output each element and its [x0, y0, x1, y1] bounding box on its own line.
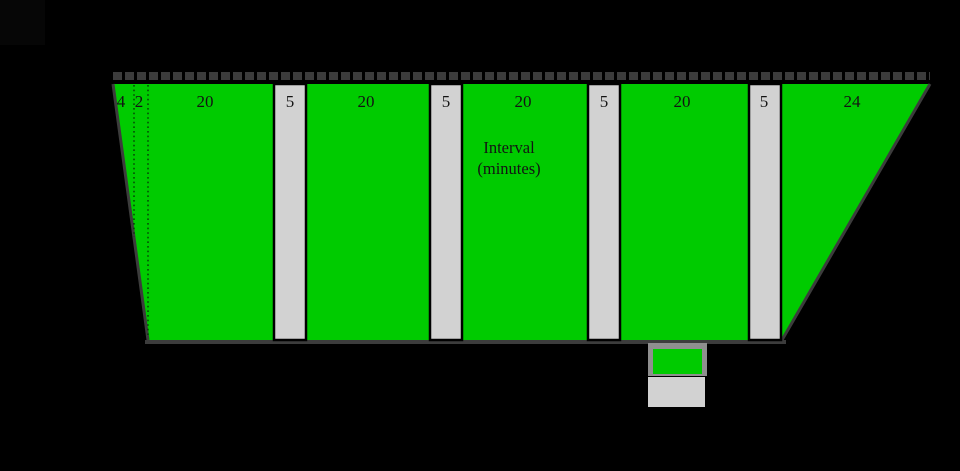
segment-label: 2 [135, 92, 144, 111]
segment-label: 5 [760, 92, 769, 111]
legend-green-swatch [653, 349, 702, 374]
break-bar-1 [274, 84, 306, 340]
segment-label: 5 [600, 92, 609, 111]
interval-unit-label-line2: (minutes) [477, 159, 540, 178]
segment-label: 20 [358, 92, 375, 111]
legend-gray-swatch [648, 377, 705, 407]
segment-label: 4 [117, 92, 126, 111]
interval-unit-label-line1: Interval [483, 138, 535, 157]
segment-label: 20 [515, 92, 532, 111]
corner-artifact-block [0, 0, 45, 45]
diagram-canvas: 4 2 20 5 20 5 20 5 20 5 24 Interval (min… [0, 0, 960, 471]
segment-label: 20 [197, 92, 214, 111]
interval-timeline-diagram: 4 2 20 5 20 5 20 5 20 5 24 Interval (min… [0, 0, 960, 471]
break-bar-4 [749, 84, 781, 340]
break-bar-3 [588, 84, 620, 340]
timeline-body [113, 84, 930, 340]
segment-label: 20 [674, 92, 691, 111]
break-bar-2 [430, 84, 462, 340]
segment-label: 5 [286, 92, 295, 111]
segment-label: 5 [442, 92, 451, 111]
segment-label: 24 [844, 92, 862, 111]
